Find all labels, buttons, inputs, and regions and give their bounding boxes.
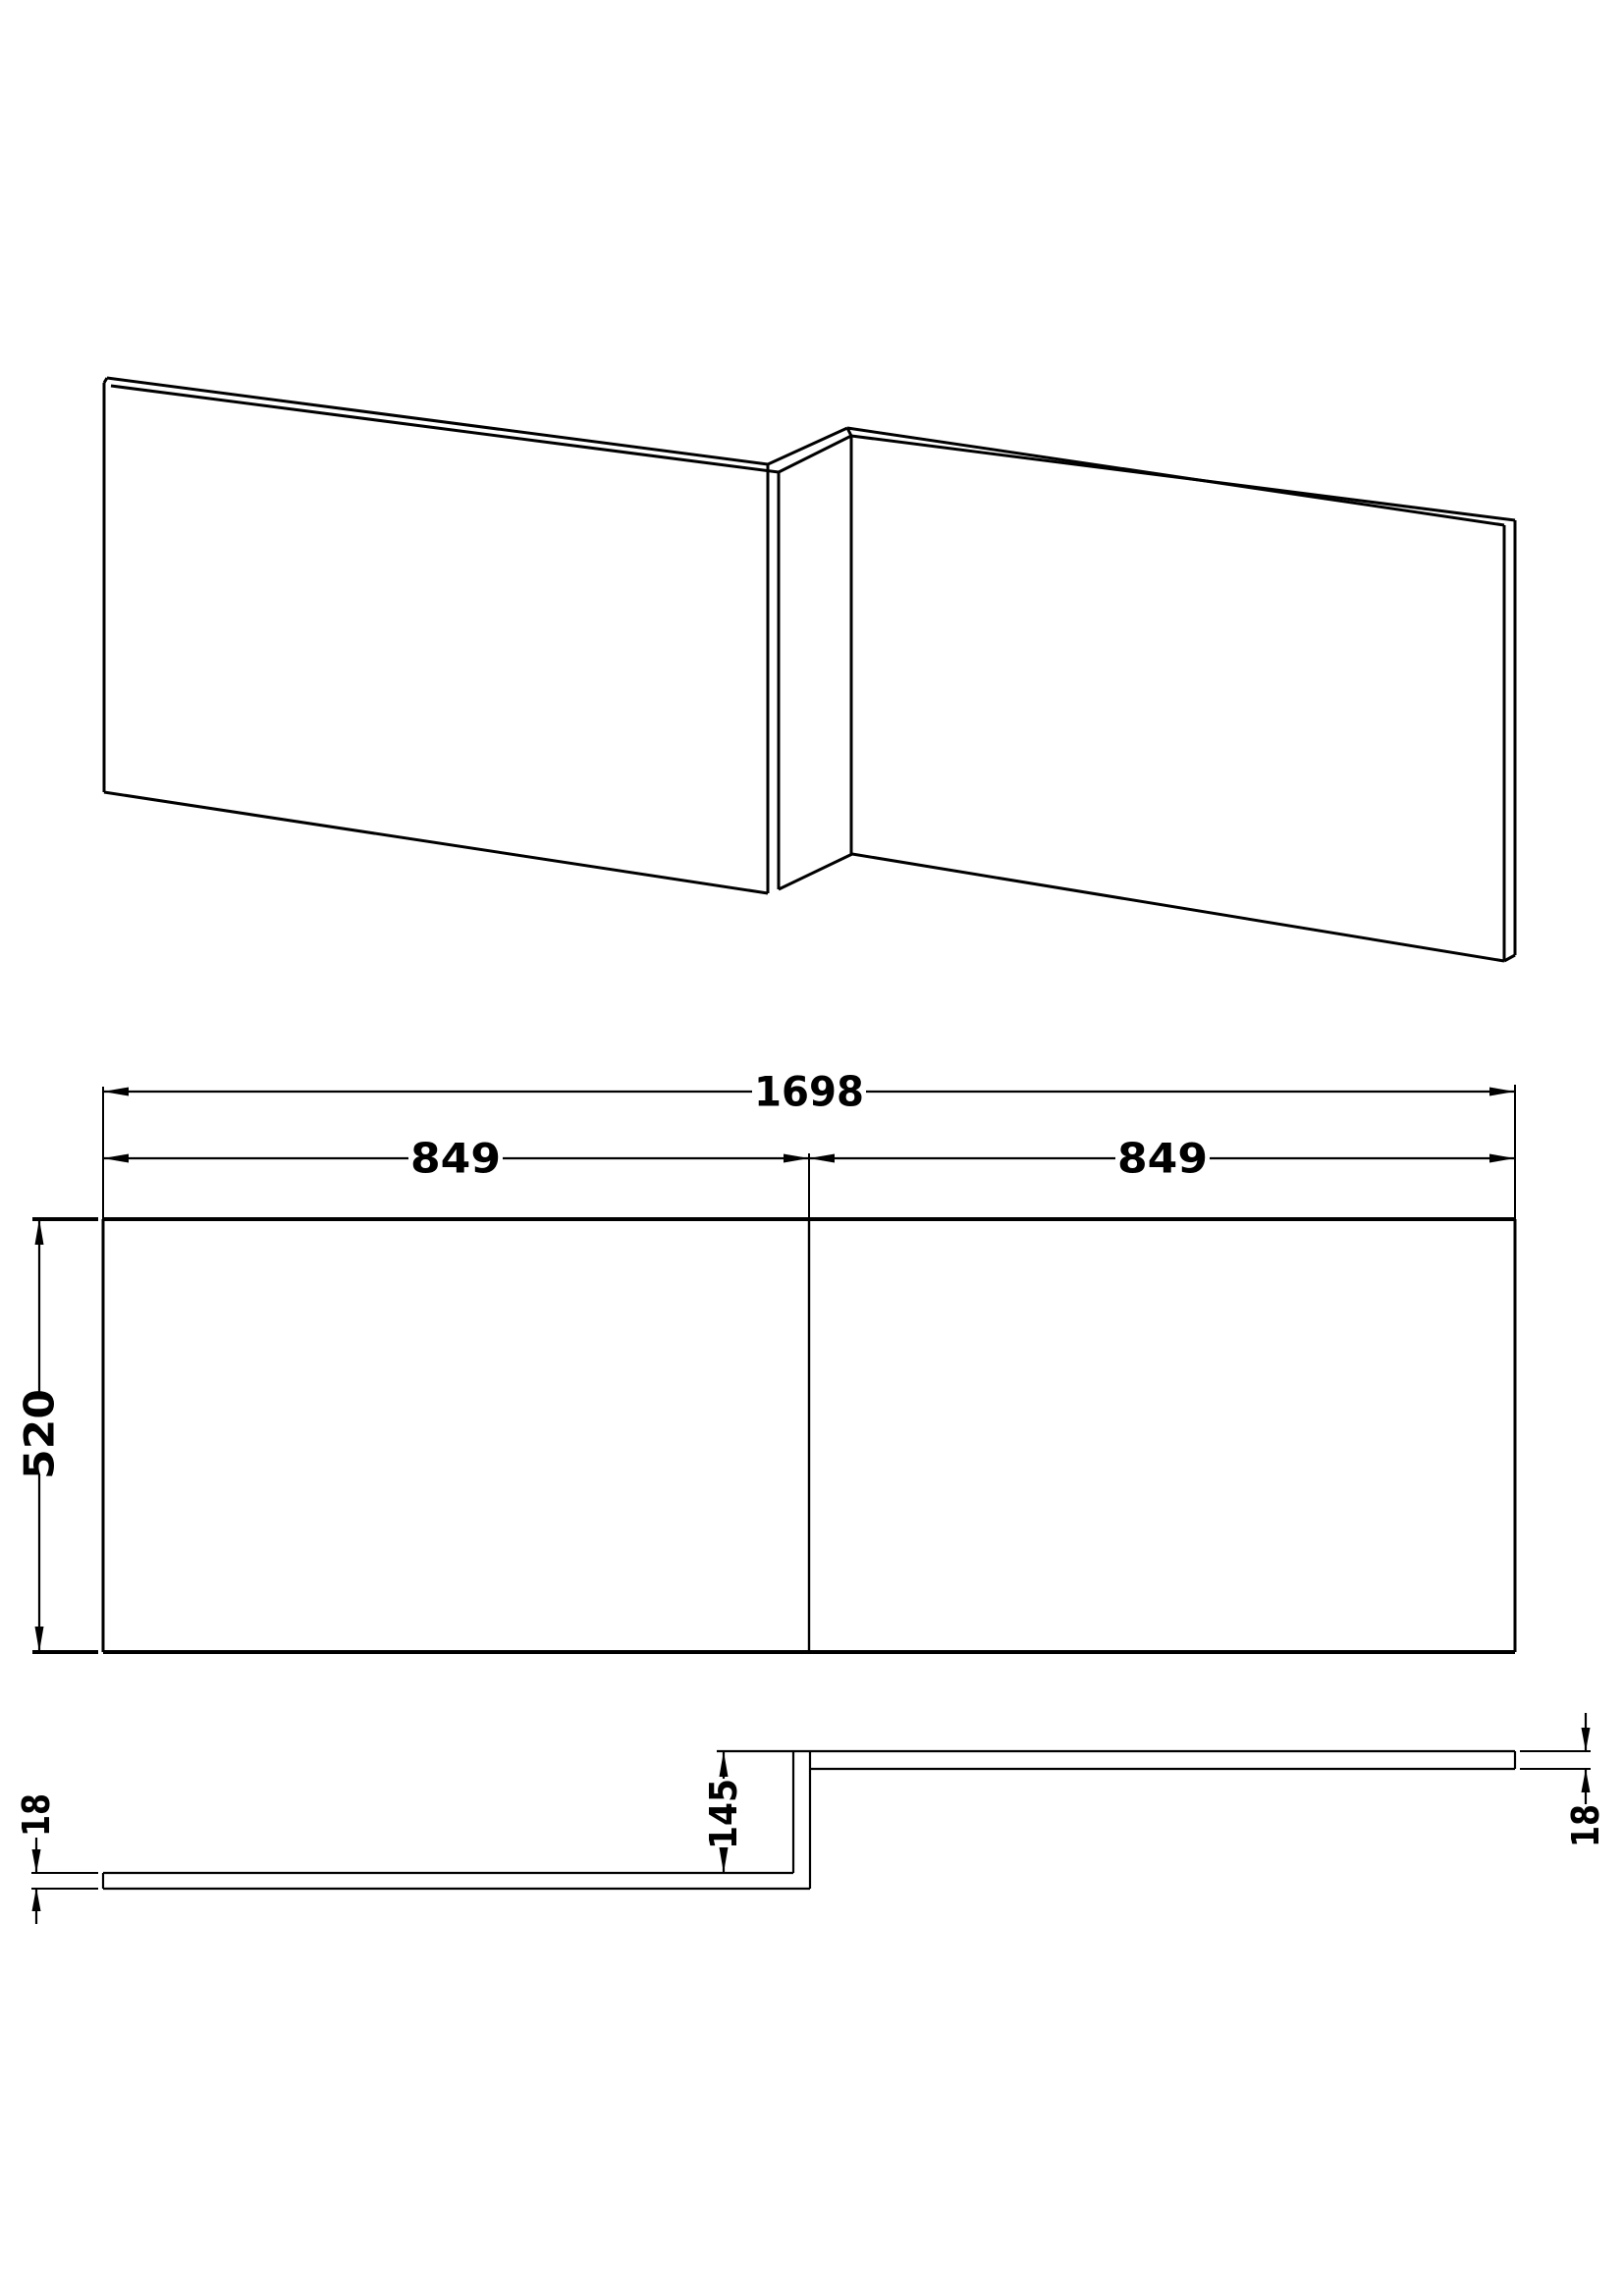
arrow-right-icon — [784, 1154, 809, 1163]
arrow-up-icon — [1582, 1769, 1591, 1792]
arrow-left-icon — [103, 1088, 129, 1096]
dimension-right-thickness: 18 — [1520, 1713, 1607, 1847]
arrow-up-icon — [720, 1751, 729, 1777]
drawing-sheet: 1698 849 849 52 — [0, 0, 1623, 2296]
arrow-right-icon — [1489, 1154, 1515, 1163]
plan-right-panel-strip — [717, 1751, 1515, 1769]
isometric-view — [104, 378, 1515, 961]
dimension-return-depth: 145 — [702, 1751, 745, 1873]
plan-left-panel-strip — [103, 1873, 810, 1889]
plan-section-view: 18 145 18 — [15, 1713, 1607, 1924]
arrow-up-icon — [32, 1888, 41, 1911]
plan-centre-return — [793, 1751, 810, 1889]
dimension-height: 520 — [16, 1219, 64, 1652]
arrow-right-icon — [1489, 1088, 1515, 1096]
dim-right-width-label: 849 — [1117, 1135, 1208, 1183]
dim-left-width-label: 849 — [410, 1135, 501, 1183]
technical-drawing-canvas: 1698 849 849 52 — [0, 0, 1623, 2296]
dimension-left-thickness: 18 — [15, 1793, 98, 1924]
arrow-down-icon — [720, 1847, 729, 1873]
iso-right-panel — [847, 428, 1515, 961]
front-panel-outline — [32, 1219, 1515, 1652]
dim-total-width-label: 1698 — [754, 1068, 864, 1116]
arrow-left-icon — [103, 1154, 129, 1163]
arrow-down-icon — [32, 1849, 41, 1873]
iso-centre-return — [768, 428, 852, 889]
arrow-down-icon — [1582, 1728, 1591, 1751]
dim-height-label: 520 — [16, 1389, 64, 1479]
dim-right-thickness-label: 18 — [1564, 1804, 1607, 1847]
arrow-up-icon — [35, 1219, 44, 1245]
dimension-half-widths: 849 849 — [103, 1135, 1515, 1220]
dim-return-depth-label: 145 — [702, 1779, 745, 1849]
iso-left-panel — [104, 378, 779, 893]
dim-left-thickness-label: 18 — [15, 1793, 58, 1837]
arrow-down-icon — [35, 1627, 44, 1652]
arrow-left-icon — [809, 1154, 835, 1163]
front-elevation-view: 1698 849 849 52 — [16, 1068, 1516, 1653]
